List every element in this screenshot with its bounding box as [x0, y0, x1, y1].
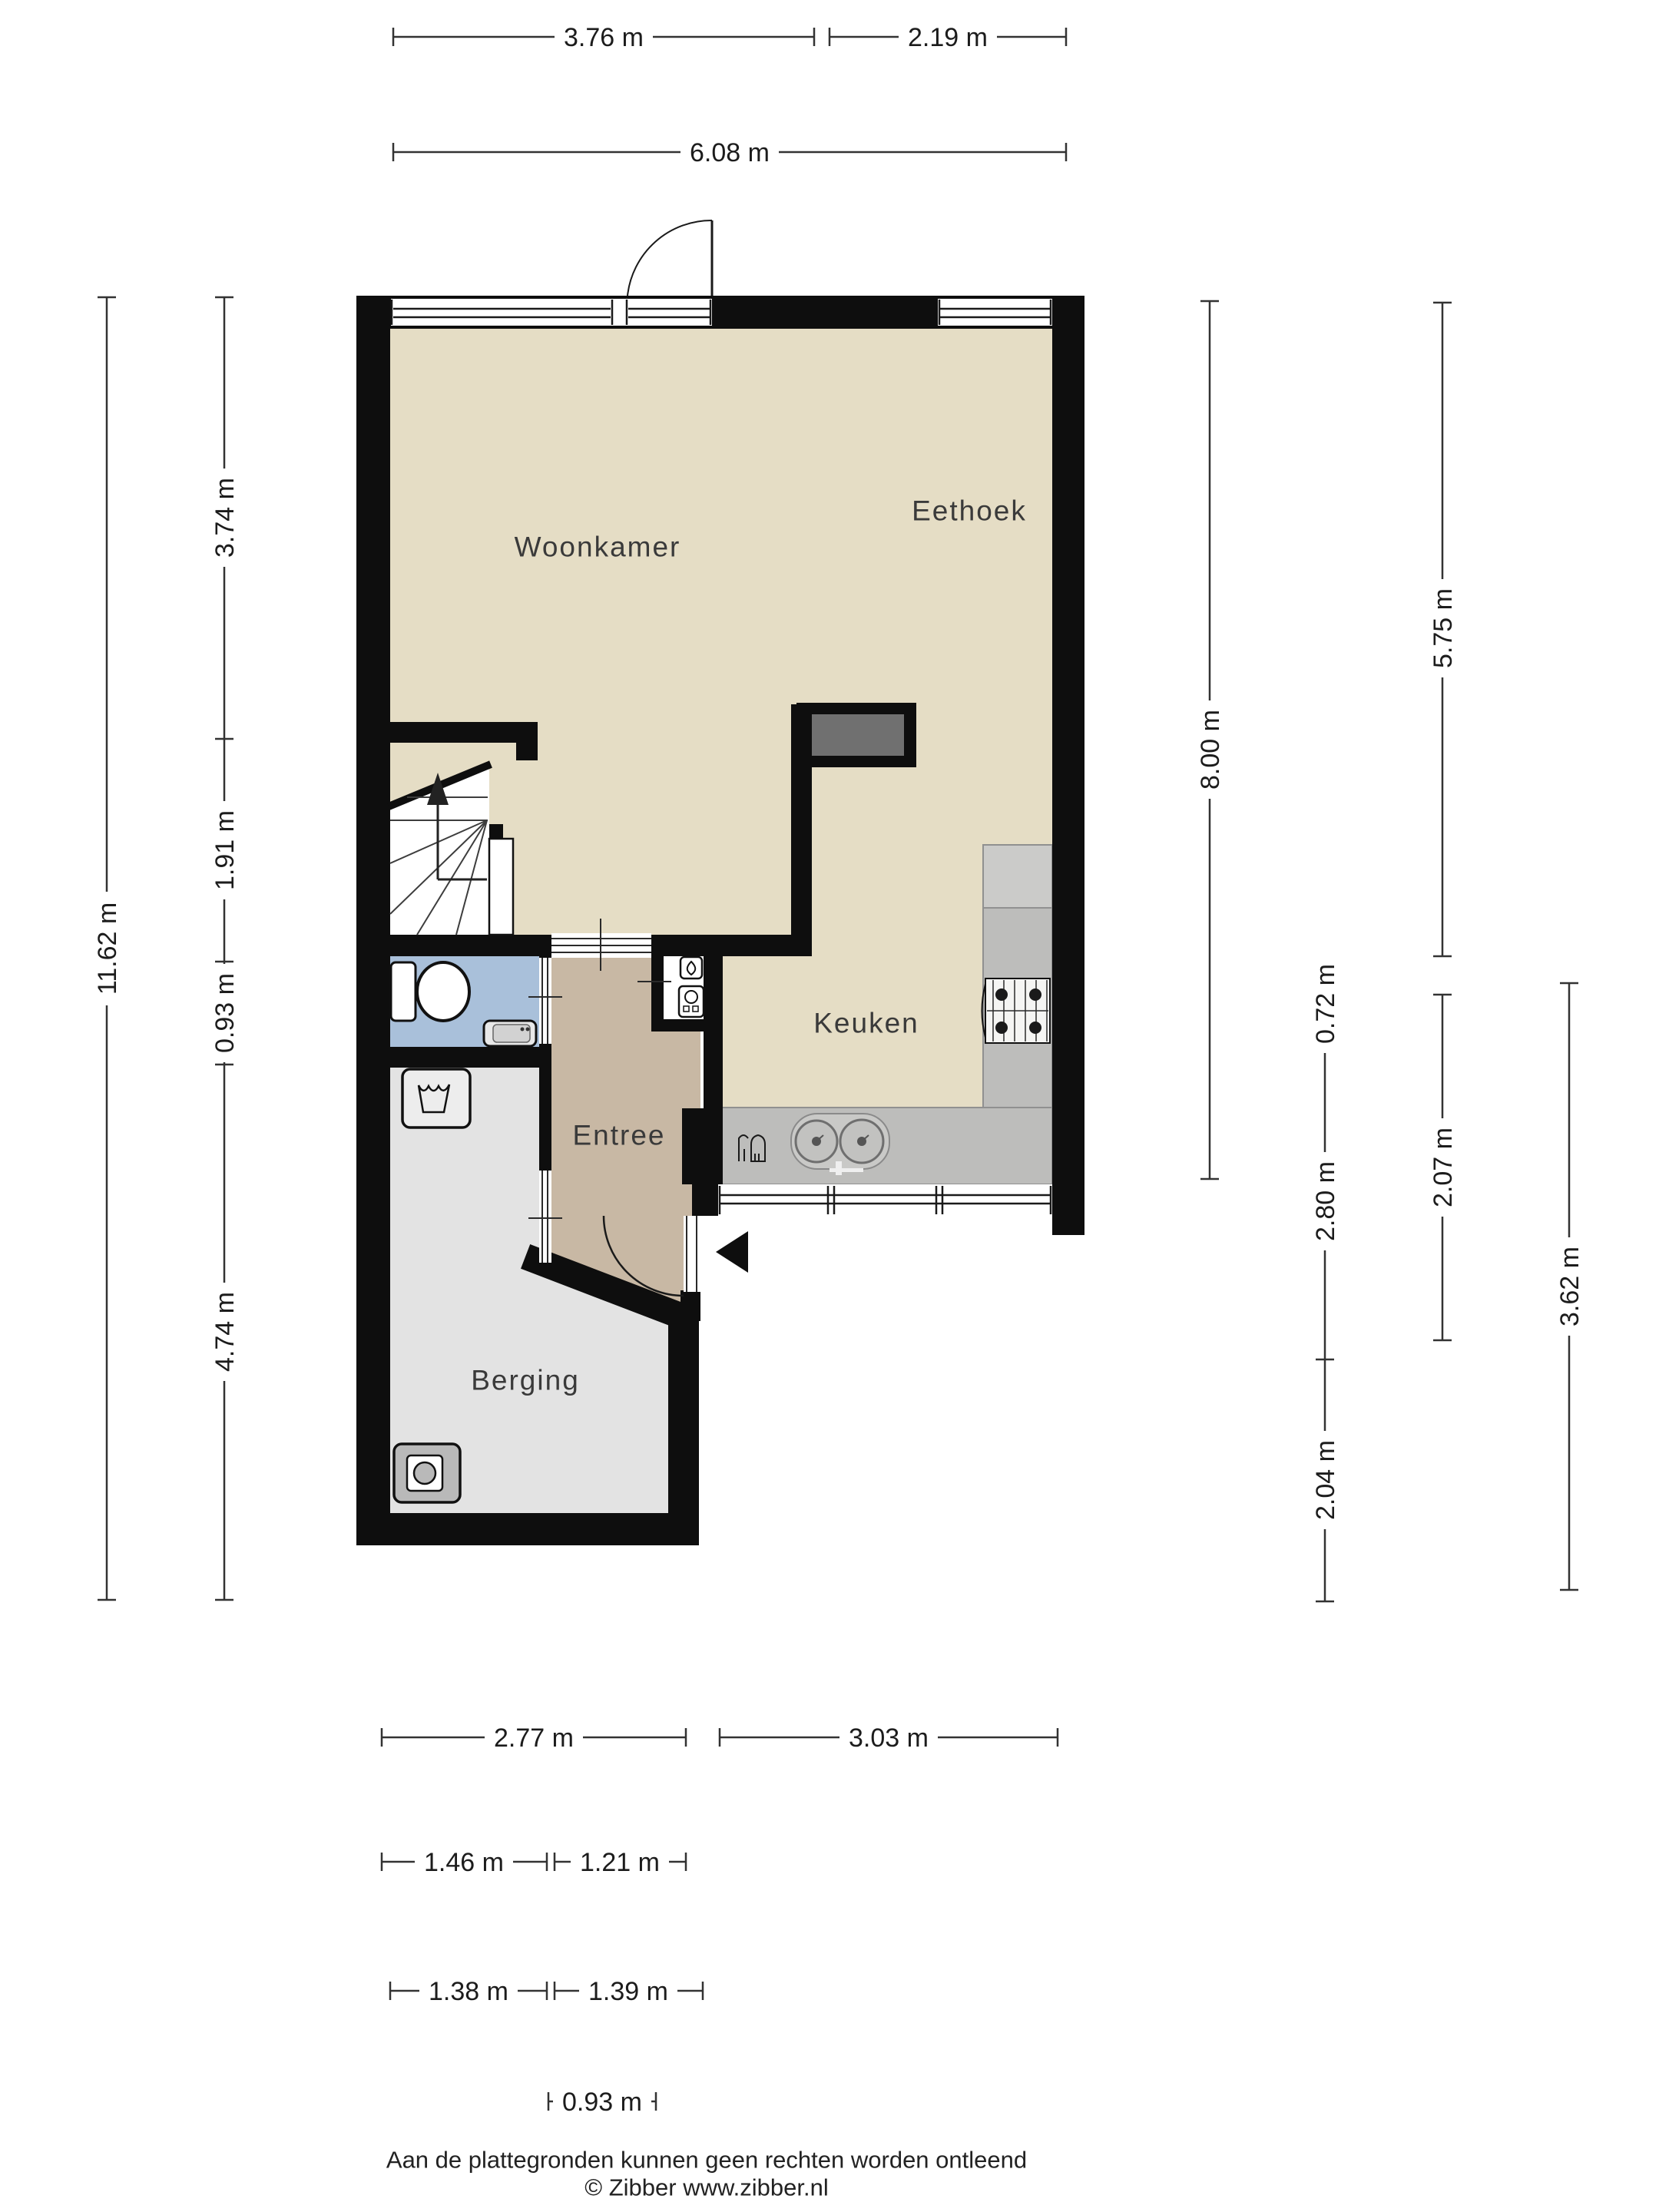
dim-right-362: 3.62 m: [1554, 983, 1584, 1590]
room-label-berging: Berging: [471, 1365, 580, 1396]
wall-kitchen-left-lower: [682, 1108, 723, 1184]
dim-top-376: 3.76 m: [393, 22, 814, 52]
svg-text:2.77 m: 2.77 m: [494, 1724, 574, 1753]
dim-right-800: 8.00 m: [1194, 301, 1225, 1179]
dimensions-right: 8.00 m 0.72 m 2.80 m 2.04 m 5.75 m 2.07 …: [1194, 301, 1584, 1601]
double-sink-icon: [791, 1114, 889, 1175]
dim-top-219: 2.19 m: [829, 22, 1066, 52]
door-swing-arc: [628, 220, 712, 296]
hand-basin-icon: [484, 1021, 536, 1046]
dryer-icon: [394, 1444, 460, 1502]
dim-bottom-303: 3.03 m: [720, 1722, 1058, 1753]
wall-stub-stairs: [390, 722, 538, 743]
door-top-swing: [628, 220, 712, 296]
dim-bottom-139: 1.39 m: [555, 1975, 703, 2006]
floorplan-canvas: Woonkamer Eethoek Keuken Entree Berging …: [0, 0, 1659, 2212]
wall-storage-right: [668, 1306, 699, 1545]
wall-left: [356, 296, 390, 1545]
wall-window-post: [692, 1184, 718, 1216]
svg-text:1.38 m: 1.38 m: [429, 1977, 508, 2006]
wall-entree-left: [539, 1047, 551, 1171]
wall-storage-bottom: [356, 1513, 699, 1545]
dim-bottom-146: 1.46 m: [382, 1846, 547, 1877]
counter-right-upper: [983, 845, 1052, 908]
window-top-right: [938, 299, 1052, 326]
svg-text:5.75 m: 5.75 m: [1429, 588, 1458, 668]
window-top-left: [391, 299, 712, 326]
wall-mid-right: [651, 935, 812, 956]
svg-text:3.74 m: 3.74 m: [210, 478, 240, 558]
svg-text:3.03 m: 3.03 m: [849, 1724, 929, 1753]
svg-text:2.04 m: 2.04 m: [1311, 1440, 1340, 1520]
window-kitchen: [718, 1184, 1052, 1216]
entrance-arrow-icon: [716, 1231, 748, 1273]
svg-text:0.72 m: 0.72 m: [1311, 964, 1340, 1044]
dim-top-608: 6.08 m: [393, 137, 1066, 167]
washing-machine-icon: [402, 1069, 470, 1128]
dimensions-left: 11.62 m 3.74 m 1.91 m 0.93 m 4.74 m: [91, 297, 240, 1600]
toilet-cistern: [391, 962, 416, 1021]
room-label-keuken: Keuken: [813, 1008, 919, 1039]
svg-text:1.39 m: 1.39 m: [588, 1977, 668, 2006]
room-label-entree: Entree: [572, 1120, 665, 1151]
svg-text:2.19 m: 2.19 m: [908, 23, 988, 52]
svg-text:8.00 m: 8.00 m: [1196, 710, 1225, 790]
water-heater-icon: [679, 986, 704, 1017]
footer: Aan de plattegronden kunnen geen rechten…: [386, 2147, 1027, 2201]
footer-disclaimer: Aan de plattegronden kunnen geen rechten…: [386, 2147, 1027, 2174]
dim-left-segments: 3.74 m 1.91 m 0.93 m 4.74 m: [209, 297, 240, 1600]
wall-kitchen-divider: [791, 704, 812, 935]
room-label-woonkamer: Woonkamer: [515, 531, 681, 563]
svg-text:1.91 m: 1.91 m: [210, 810, 240, 890]
dim-right-segments-inner: 0.72 m 2.80 m 2.04 m: [1310, 955, 1340, 1601]
room-label-eethoek: Eethoek: [912, 495, 1027, 527]
chimney-duct: [796, 703, 916, 767]
svg-text:1.21 m: 1.21 m: [580, 1848, 660, 1877]
wall-right: [1052, 296, 1084, 1235]
toilet-icon: [417, 962, 469, 1021]
footer-credit: © Zibber www.zibber.nl: [584, 2174, 828, 2201]
svg-text:0.93 m: 0.93 m: [210, 973, 240, 1053]
svg-text:0.93 m: 0.93 m: [562, 2088, 642, 2117]
svg-text:3.76 m: 3.76 m: [564, 23, 644, 52]
svg-text:2.07 m: 2.07 m: [1429, 1128, 1458, 1207]
dimensions-bottom: 2.77 m 3.03 m 1.46 m 1.21 m 1.38 m: [382, 1722, 1058, 2117]
chimney-fill: [810, 714, 904, 756]
dim-right-575-207: 5.75 m 2.07 m: [1427, 303, 1458, 1340]
dimensions-top: 3.76 m 2.19 m 6.08 m: [393, 22, 1066, 167]
svg-text:11.62 m: 11.62 m: [93, 902, 122, 995]
dim-left-1162: 11.62 m: [91, 297, 122, 1600]
dim-bottom-277: 2.77 m: [382, 1722, 686, 1753]
wall-kitchen-left-upper: [704, 956, 723, 1108]
stairs-side-wall: [489, 839, 513, 935]
svg-text:3.62 m: 3.62 m: [1555, 1247, 1584, 1326]
dim-bottom-121: 1.21 m: [555, 1846, 686, 1877]
svg-text:1.46 m: 1.46 m: [424, 1848, 504, 1877]
wall-toilet-bottom: [356, 1047, 551, 1068]
svg-text:4.74 m: 4.74 m: [210, 1292, 240, 1372]
dim-bottom-093: 0.93 m: [548, 2086, 656, 2117]
svg-text:6.08 m: 6.08 m: [690, 138, 770, 167]
boiler-icon: [680, 957, 702, 979]
wall-stub-notch: [516, 743, 538, 760]
svg-text:2.80 m: 2.80 m: [1311, 1161, 1340, 1241]
dim-bottom-138: 1.38 m: [390, 1975, 547, 2006]
gas-hob-icon: [982, 979, 1051, 1043]
stairs-newel-block: [489, 824, 503, 839]
wall-mid-left: [356, 935, 551, 956]
